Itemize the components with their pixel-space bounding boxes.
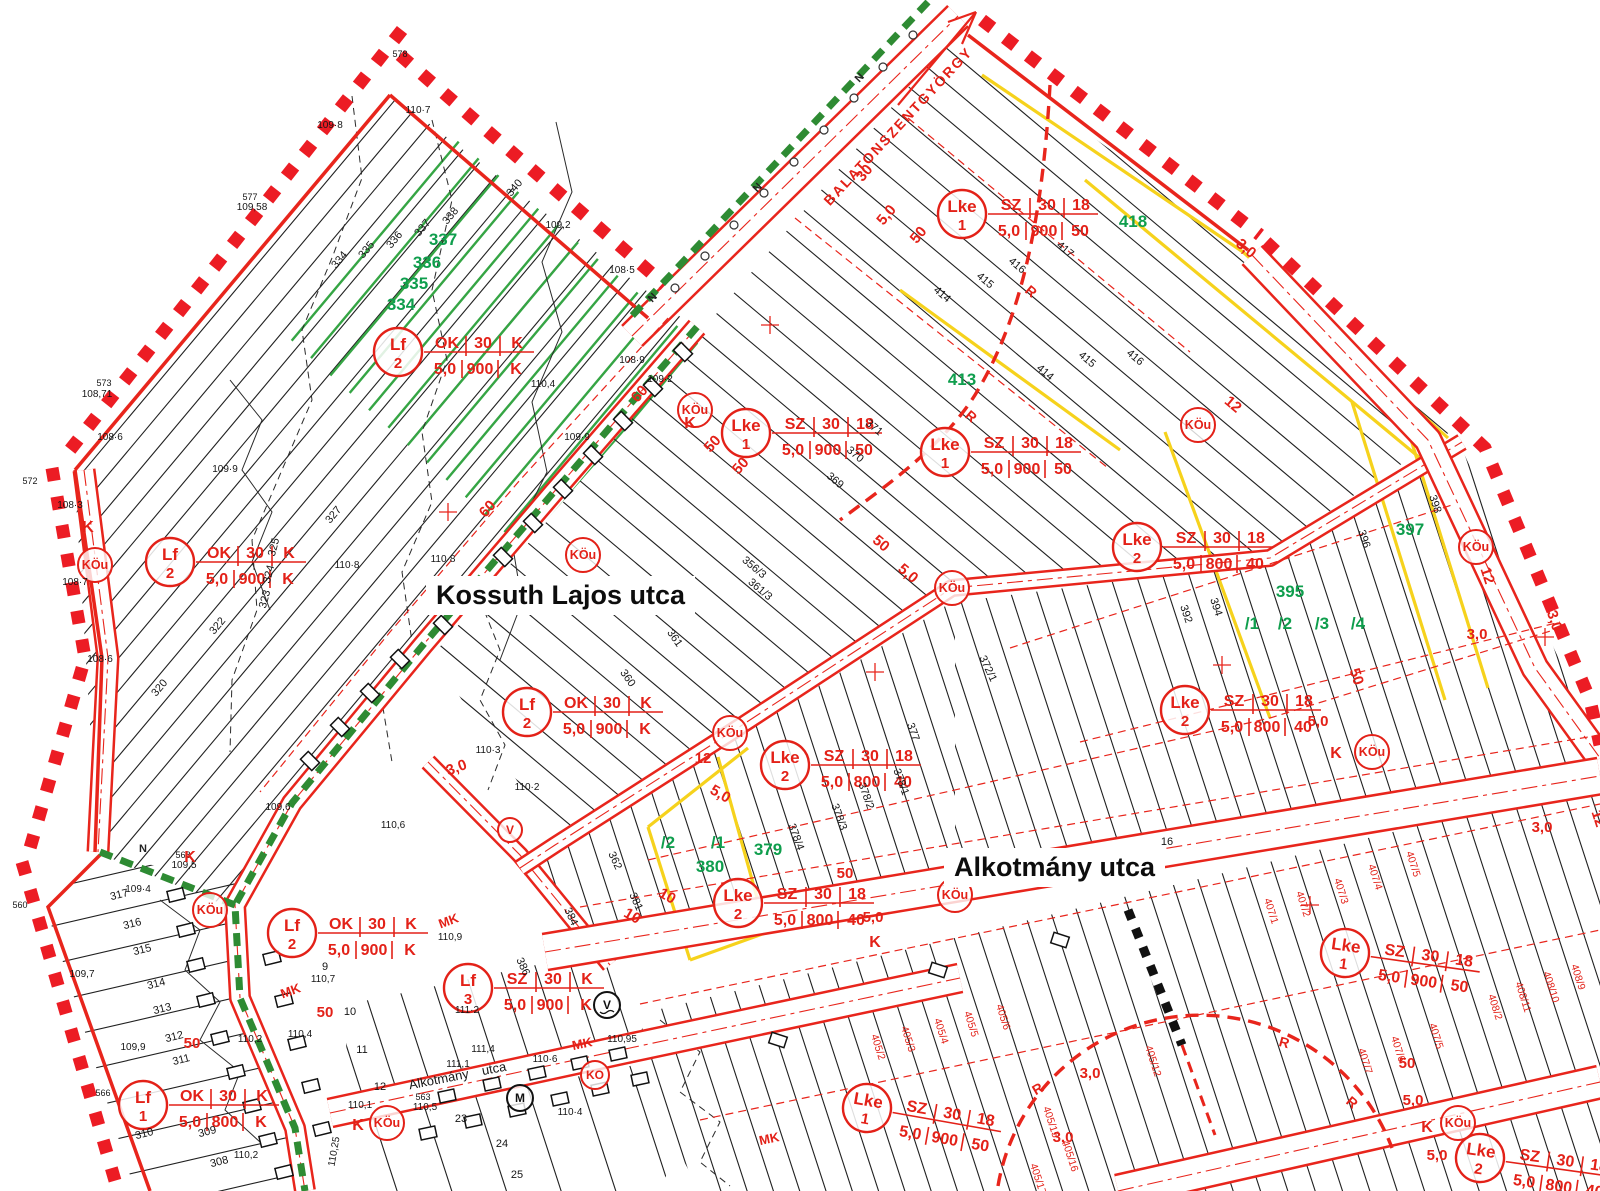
building xyxy=(1051,932,1070,947)
red-dimension-label: 12 xyxy=(695,750,712,767)
green-parcel-number-label: /2 xyxy=(1278,614,1292,633)
red-dimension-label: 50 xyxy=(1346,666,1367,687)
utility-circle-KÖu: KÖu xyxy=(1355,735,1389,769)
svg-text:2: 2 xyxy=(288,936,296,953)
red-k-mark-label: K xyxy=(82,519,94,536)
black-parcel-number-label: 414 xyxy=(931,284,953,305)
svg-text:900: 900 xyxy=(596,721,623,738)
red-parcel-number-label: 405/4 xyxy=(931,1017,951,1046)
svg-text:Lf: Lf xyxy=(460,971,476,990)
svg-text:Lke: Lke xyxy=(947,197,976,216)
utility-circle-KÖu: KÖu xyxy=(193,893,227,927)
svg-text:900: 900 xyxy=(361,942,388,959)
svg-text:Lke: Lke xyxy=(1465,1139,1497,1162)
elevation-value-label: 110,95 xyxy=(607,1034,637,1045)
black-parcel-number-label: 312 xyxy=(164,1029,185,1045)
elevation-value-label: 110,2 xyxy=(234,1150,259,1161)
elevation-value-label: 109·9 xyxy=(212,464,238,475)
svg-text:40: 40 xyxy=(1246,556,1264,573)
svg-text:30: 30 xyxy=(1261,693,1279,710)
red-dimension-label: 50 xyxy=(1399,1055,1416,1072)
svg-text:KÖu: KÖu xyxy=(1185,417,1211,432)
svg-text:30: 30 xyxy=(219,1088,237,1105)
building xyxy=(187,958,205,973)
svg-text:2: 2 xyxy=(781,768,789,785)
svg-text:5,0: 5,0 xyxy=(434,361,456,378)
svg-text:KÖu: KÖu xyxy=(570,547,596,562)
zone-symbol-Lf2: Lf2OK30K5,0900K xyxy=(374,328,534,378)
svg-text:30: 30 xyxy=(246,545,264,562)
svg-text:Lf: Lf xyxy=(390,335,406,354)
elevation-value-label: 109,58 xyxy=(237,202,268,213)
svg-text:KÖu: KÖu xyxy=(374,1115,400,1130)
black-parcel-number-label: 10 xyxy=(344,1006,356,1018)
elevation-value-label: 109·2 xyxy=(647,374,673,385)
svg-text:18: 18 xyxy=(848,886,866,903)
svg-text:18: 18 xyxy=(1072,197,1090,214)
black-parcel-number-label: 361 xyxy=(664,627,684,649)
svg-text:18: 18 xyxy=(1247,530,1265,547)
elevation-value-label: 110·4 xyxy=(558,1107,583,1118)
elevation-value-label: 110·8 xyxy=(335,560,360,571)
svg-text:K: K xyxy=(639,721,651,738)
svg-text:900: 900 xyxy=(930,1129,959,1150)
elevation-value-label: 109·8 xyxy=(317,120,343,131)
green-parcel-number-label: 334 xyxy=(387,295,416,314)
zone-symbol-Lke2: Lke2SZ30185,080040 xyxy=(1453,1131,1600,1191)
red-dimension-label: 50 xyxy=(837,865,854,882)
red-dimension-label: 3,0 xyxy=(1080,1065,1101,1082)
svg-text:800: 800 xyxy=(1254,719,1281,736)
svg-text:OK: OK xyxy=(435,335,459,352)
red-k-mark-label: K xyxy=(1421,1119,1433,1136)
red-parcel-number-label: 407/3 xyxy=(1331,877,1351,906)
street-label-alkotmany: Alkotmány utca xyxy=(944,848,1165,887)
svg-text:5,0: 5,0 xyxy=(998,223,1020,240)
svg-text:KÖu: KÖu xyxy=(197,902,223,917)
utility-circle-KÖu: KÖu xyxy=(1181,408,1215,442)
svg-text:18: 18 xyxy=(1589,1156,1600,1175)
svg-text:K: K xyxy=(581,971,593,988)
red-parcel-number-label: 408/11 xyxy=(1512,980,1533,1014)
svg-text:30: 30 xyxy=(822,416,840,433)
svg-text:50: 50 xyxy=(1054,461,1072,478)
utility-circle-KÖu: KÖu xyxy=(713,716,747,750)
black-parcel-number-label: 378/3 xyxy=(828,802,849,832)
red-parcel-number-label: 405/5 xyxy=(961,1010,981,1039)
red-k-mark-label: K xyxy=(869,934,881,951)
svg-text:KO: KO xyxy=(586,1068,604,1082)
svg-text:Lf: Lf xyxy=(519,695,535,714)
red-dimension-label: 5,0 xyxy=(1308,713,1329,730)
svg-text:KÖu: KÖu xyxy=(1445,1115,1471,1130)
red-dimension-label: 5,0 xyxy=(894,560,921,586)
building xyxy=(609,1047,627,1061)
black-parcel-number-label: 25 xyxy=(511,1169,523,1181)
black-parcel-number-label: 316 xyxy=(122,916,143,932)
svg-text:5,0: 5,0 xyxy=(1377,967,1401,987)
building xyxy=(275,1165,293,1180)
svg-text:30: 30 xyxy=(603,695,621,712)
red-parcel-number-label: 407/2 xyxy=(1293,890,1313,919)
green-parcel-number-label: 380 xyxy=(696,857,724,876)
svg-text:30: 30 xyxy=(368,916,386,933)
svg-text:50: 50 xyxy=(970,1136,991,1156)
svg-text:1: 1 xyxy=(742,436,750,453)
black-parcel-number-label: 414 xyxy=(1034,362,1056,383)
elevation-value-label: 110,4 xyxy=(531,379,556,390)
zone-symbol-Lke2: Lke2SZ30185,080040 xyxy=(1113,523,1273,573)
green-parcel-number-label: 397 xyxy=(1396,520,1424,539)
svg-text:5,0: 5,0 xyxy=(563,721,585,738)
building xyxy=(769,1032,788,1047)
svg-text:2: 2 xyxy=(1133,550,1141,567)
survey-point-number-label: 566 xyxy=(95,1088,110,1098)
red-dimension-label: 5,0 xyxy=(1427,1147,1448,1164)
building xyxy=(227,1065,245,1080)
svg-text:Lf: Lf xyxy=(162,545,178,564)
svg-text:Lf: Lf xyxy=(284,916,300,935)
green-parcel-number-label: /2 xyxy=(661,833,675,852)
svg-text:40: 40 xyxy=(1584,1182,1600,1191)
red-dimension-label: 12 xyxy=(1221,393,1245,417)
elevation-value-label: 110,9 xyxy=(438,932,463,943)
red-parcel-number-label: 407/7 xyxy=(1355,1047,1375,1076)
utility-circle-KÖu: KÖu xyxy=(1459,530,1493,564)
svg-text:5,0: 5,0 xyxy=(504,997,526,1014)
elevation-value-label: 108·6 xyxy=(87,654,113,665)
svg-text:2: 2 xyxy=(1181,713,1189,730)
green-parcel-number-label: 337 xyxy=(429,230,457,249)
elevation-value-label: 108,71 xyxy=(82,389,113,400)
svg-text:V: V xyxy=(506,823,514,837)
elevation-value-label: 110,2 xyxy=(238,1034,263,1045)
svg-text:OK: OK xyxy=(207,545,231,562)
black-parcel-number-label: 11 xyxy=(356,1044,367,1056)
black-parcel-number-label: 314 xyxy=(146,976,167,992)
svg-text:Lke: Lke xyxy=(1170,693,1199,712)
n-survey-mark-label: N xyxy=(139,843,147,855)
red-dimension-label: 3,0 xyxy=(444,756,469,779)
elevation-value-label: 109,9 xyxy=(120,1042,145,1053)
black-parcel-number-label: 416 xyxy=(1124,347,1146,368)
building xyxy=(528,1066,546,1080)
red-parcel-number-label: 405/6 xyxy=(993,1003,1013,1032)
red-k-mark-label: K xyxy=(684,415,696,432)
red-parcel-number-label: 405/2 xyxy=(868,1033,888,1062)
utility-circle-KO: KO xyxy=(581,1061,609,1089)
svg-text:Lke: Lke xyxy=(930,435,959,454)
svg-text:Lke: Lke xyxy=(1122,530,1151,549)
zone-symbol-Lf2: Lf2OK30K5,0900K xyxy=(503,688,663,738)
svg-text:SZ: SZ xyxy=(824,748,845,765)
green-parcel-number-label: /1 xyxy=(1245,614,1259,633)
svg-text:30: 30 xyxy=(1038,197,1056,214)
svg-text:1: 1 xyxy=(139,1108,147,1125)
svg-text:900: 900 xyxy=(537,997,564,1014)
building xyxy=(259,1133,277,1148)
elevation-value-label: 109,2 xyxy=(545,220,570,231)
red-dimension-label: 5,0 xyxy=(863,909,884,926)
svg-text:SZ: SZ xyxy=(905,1098,928,1118)
svg-text:SZ: SZ xyxy=(1224,693,1245,710)
elevation-value-label: 110,25 xyxy=(327,1135,343,1167)
svg-text:KÖu: KÖu xyxy=(942,887,968,902)
black-parcel-number-label: 372/1 xyxy=(976,654,999,684)
svg-text:KÖu: KÖu xyxy=(939,580,965,595)
svg-text:KÖu: KÖu xyxy=(1359,744,1385,759)
svg-text:5,0: 5,0 xyxy=(1512,1172,1536,1191)
black-parcel-number-label: 394 xyxy=(1207,596,1224,617)
svg-text:SZ: SZ xyxy=(777,886,798,903)
svg-text:30: 30 xyxy=(942,1104,963,1124)
street-label-kossuth: Kossuth Lajos utca xyxy=(426,576,695,615)
black-parcel-number-label: 320 xyxy=(149,677,170,699)
svg-text:2: 2 xyxy=(166,565,174,582)
green-parcel-number-label: 379 xyxy=(754,840,782,859)
svg-text:Lke: Lke xyxy=(723,886,752,905)
black-parcel-number-label: 334 xyxy=(329,249,350,271)
svg-text:K: K xyxy=(256,1088,268,1105)
svg-text:18: 18 xyxy=(895,748,913,765)
survey-circle-row xyxy=(671,31,917,292)
svg-text:2: 2 xyxy=(394,355,402,372)
svg-text:5,0: 5,0 xyxy=(898,1123,923,1144)
survey-point-number-label: 577 xyxy=(242,192,257,202)
svg-text:30: 30 xyxy=(1213,530,1231,547)
svg-text:K: K xyxy=(255,1114,267,1131)
svg-text:5,0: 5,0 xyxy=(1221,719,1243,736)
svg-text:Lf: Lf xyxy=(135,1088,151,1107)
red-parcel-number-label: 407/5 xyxy=(1426,1022,1446,1051)
building xyxy=(313,1122,331,1137)
svg-text:SZ: SZ xyxy=(1001,197,1022,214)
black-parcel-number-label: 324 xyxy=(261,564,277,585)
svg-text:1: 1 xyxy=(958,217,966,234)
red-parcel-number-label: 408/10 xyxy=(1540,970,1561,1004)
building xyxy=(167,888,185,903)
svg-text:1: 1 xyxy=(941,455,949,472)
svg-text:M: M xyxy=(515,1091,525,1105)
zone-symbol-Lke1: Lke1SZ30185,090050 xyxy=(938,190,1098,240)
green-parcel-number-label: 413 xyxy=(948,370,976,389)
survey-point-number-label: 578 xyxy=(392,49,407,59)
red-k-mark-label: K xyxy=(184,849,196,866)
black-parcel-number-label: 12 xyxy=(374,1081,386,1093)
green-parcel-number-label: /4 xyxy=(1351,614,1366,633)
black-parcel-number-label: 392 xyxy=(1177,603,1194,624)
utility-circle-KÖu: KÖu xyxy=(566,538,600,572)
svg-text:800: 800 xyxy=(1206,556,1233,573)
elevation-value-label: 110,7 xyxy=(311,974,336,985)
red-dimension-label: 50 xyxy=(317,1004,334,1021)
black-parcel-number-label: 9 xyxy=(322,961,328,973)
svg-text:SZ: SZ xyxy=(1518,1147,1541,1167)
red-dimension-label: 5,0 xyxy=(873,202,899,229)
zone-symbol-Lke1: Lke1SZ30185,090050 xyxy=(921,428,1081,478)
red-dimension-label: 3,0 xyxy=(1467,626,1488,643)
svg-text:2: 2 xyxy=(523,715,531,732)
building xyxy=(438,1089,456,1103)
elevation-value-label: 108·5 xyxy=(609,265,635,276)
red-r-mark-label: R xyxy=(1343,1093,1361,1112)
svg-text:30: 30 xyxy=(1555,1152,1575,1171)
red-dimension-label: 3,0 xyxy=(1053,1129,1074,1146)
svg-text:900: 900 xyxy=(467,361,494,378)
svg-text:50: 50 xyxy=(1071,223,1089,240)
red-dimension-label: 10 xyxy=(656,885,679,908)
svg-text:5,0: 5,0 xyxy=(328,942,350,959)
red-dimension-label: 3,0 xyxy=(1532,819,1553,836)
svg-text:Lke: Lke xyxy=(731,416,760,435)
svg-text:Lke: Lke xyxy=(770,748,799,767)
red-dimension-label: 5,0 xyxy=(1403,1092,1424,1109)
elevation-value-label: 110·7 xyxy=(406,105,431,116)
red-r-mark-label: R xyxy=(1022,282,1040,301)
black-parcel-number-label: 313 xyxy=(152,1001,173,1017)
svg-text:K: K xyxy=(640,695,652,712)
building xyxy=(631,1072,649,1086)
svg-text:30: 30 xyxy=(861,748,879,765)
survey-point-number-label: 573 xyxy=(96,378,111,388)
zoning-map-stage: Lf2OK30K5,0900KLf2OK30K5,0900KLf2OK30K5,… xyxy=(0,0,1600,1191)
black-parcel-number-label: 415 xyxy=(1076,349,1098,370)
building xyxy=(177,923,195,938)
red-k-mark-label: K xyxy=(352,1117,364,1134)
utility-circle-KÖu: KÖu xyxy=(935,571,969,605)
red-parcel-number-label: 408/2 xyxy=(1485,993,1505,1022)
svg-text:900: 900 xyxy=(1014,461,1041,478)
black-parcel-number-label: 24 xyxy=(496,1138,508,1150)
red-parcel-number-label: 405/17 xyxy=(1027,1162,1048,1191)
svg-text:K: K xyxy=(510,361,522,378)
svg-text:30: 30 xyxy=(474,335,492,352)
zone-symbol-Lf2: Lf2OK30K5,0900K xyxy=(268,909,428,959)
svg-text:K: K xyxy=(283,545,295,562)
svg-text:Lke: Lke xyxy=(1330,934,1362,957)
svg-text:900: 900 xyxy=(1031,223,1058,240)
svg-text:SZ: SZ xyxy=(1176,530,1197,547)
survey-point-number-label: 563 xyxy=(415,1092,430,1102)
svg-text:30: 30 xyxy=(1021,435,1039,452)
black-parcel-number-label: 16 xyxy=(1161,836,1173,848)
n-survey-mark: NNNN xyxy=(139,71,867,855)
svg-text:SZ: SZ xyxy=(1383,942,1406,962)
black-parcel-number-label: 23 xyxy=(455,1113,467,1125)
svg-text:5,0: 5,0 xyxy=(782,442,804,459)
building xyxy=(419,1126,437,1140)
green-parcel-number-label: /3 xyxy=(1315,614,1329,633)
elevation-value-label: 110,4 xyxy=(288,1029,313,1040)
red-r-mark-label: R xyxy=(1277,1033,1291,1051)
utility-circle-V: V xyxy=(594,992,620,1018)
green-parcel-number-label: /1 xyxy=(711,833,725,852)
svg-text:30: 30 xyxy=(544,971,562,988)
svg-text:900: 900 xyxy=(1409,971,1438,992)
red-mk-mark-label: MK xyxy=(278,980,303,1001)
survey-point-number-label: 572 xyxy=(22,476,37,486)
elevation-value-label: 108·9 xyxy=(619,355,645,366)
building xyxy=(483,1077,501,1091)
black-parcel-number-label: 322 xyxy=(207,615,228,637)
svg-text:5,0: 5,0 xyxy=(981,461,1003,478)
zone-symbol-Lke2: Lke2SZ30185,080040 xyxy=(1161,686,1321,736)
utility-circle-V: V xyxy=(498,818,522,842)
black-parcel-number-label: 369 xyxy=(824,470,846,491)
elevation-value-label: 110,6 xyxy=(381,820,406,831)
svg-text:18: 18 xyxy=(975,1110,996,1130)
black-parcel-number-label: 417 xyxy=(1054,239,1076,260)
elevation-value-label: 109,6 xyxy=(265,802,290,813)
svg-text:900: 900 xyxy=(815,442,842,459)
svg-text:5,0: 5,0 xyxy=(206,571,228,588)
green-parcel-number-label: 418 xyxy=(1119,212,1147,231)
black-parcel-number-label: 311 xyxy=(171,1052,191,1068)
svg-text:18: 18 xyxy=(1454,951,1474,970)
elevation-value-label: 108·3 xyxy=(57,500,83,511)
zoning-map-canvas: Lf2OK30K5,0900KLf2OK30K5,0900KLf2OK30K5,… xyxy=(0,0,1600,1191)
green-parcel-number-label: 335 xyxy=(400,274,428,293)
elevation-value-label: 109,7 xyxy=(69,969,94,980)
svg-text:5,0: 5,0 xyxy=(821,774,843,791)
elevation-value-label: 110·6 xyxy=(533,1054,558,1065)
black-parcel-number-label: 325 xyxy=(266,537,282,558)
elevation-value-label: 110,5 xyxy=(413,1102,438,1113)
black-parcel-number-label: 327 xyxy=(323,504,344,526)
building xyxy=(551,1092,569,1106)
black-parcel-number-label: 378/4 xyxy=(785,822,806,852)
svg-text:K: K xyxy=(511,335,523,352)
building xyxy=(211,1031,229,1046)
svg-text:OK: OK xyxy=(329,916,353,933)
black-parcel-number-label: 415 xyxy=(974,270,996,291)
red-mk-mark-label: MK xyxy=(436,910,461,931)
elevation-value-label: 110·3 xyxy=(476,745,501,756)
black-parcel-number-label: 336 xyxy=(384,229,405,251)
svg-text:K: K xyxy=(580,997,592,1014)
svg-text:5,0: 5,0 xyxy=(1173,556,1195,573)
svg-text:50: 50 xyxy=(1449,977,1469,996)
red-parcel-number-label: 405/3 xyxy=(898,1025,918,1054)
elevation-value-label: 108·6 xyxy=(97,432,123,443)
red-parcel-number-label: 405/12 xyxy=(1142,1044,1163,1078)
elevation-value-label: 110·8 xyxy=(431,554,456,565)
svg-text:800: 800 xyxy=(807,912,834,929)
black-parcel-number-label: 360 xyxy=(617,667,637,689)
elevation-value-label: 111,4 xyxy=(471,1044,495,1055)
elevation-value-label: 110,1 xyxy=(348,1100,373,1111)
svg-text:800: 800 xyxy=(1544,1176,1573,1191)
svg-text:SZ: SZ xyxy=(984,435,1005,452)
utility-circle-M: M xyxy=(507,1085,533,1111)
svg-text:30: 30 xyxy=(814,886,832,903)
red-parcel-number-label: 407/4 xyxy=(1365,863,1385,892)
survey-point-number-label: 560 xyxy=(12,900,27,910)
svg-text:K: K xyxy=(282,571,294,588)
svg-text:OK: OK xyxy=(180,1088,204,1105)
elevation-value-label: 109·9 xyxy=(564,432,590,443)
building xyxy=(302,1079,320,1094)
svg-text:KÖu: KÖu xyxy=(1463,539,1489,554)
elevation-value-label: 110·2 xyxy=(515,782,540,793)
svg-text:18: 18 xyxy=(1295,693,1313,710)
red-dimension-label: 12 xyxy=(1588,808,1600,829)
building xyxy=(197,993,215,1008)
svg-text:SZ: SZ xyxy=(785,416,806,433)
green-parcel-number-label: 395 xyxy=(1276,582,1304,601)
svg-text:KÖu: KÖu xyxy=(717,725,743,740)
svg-text:5,0: 5,0 xyxy=(774,912,796,929)
